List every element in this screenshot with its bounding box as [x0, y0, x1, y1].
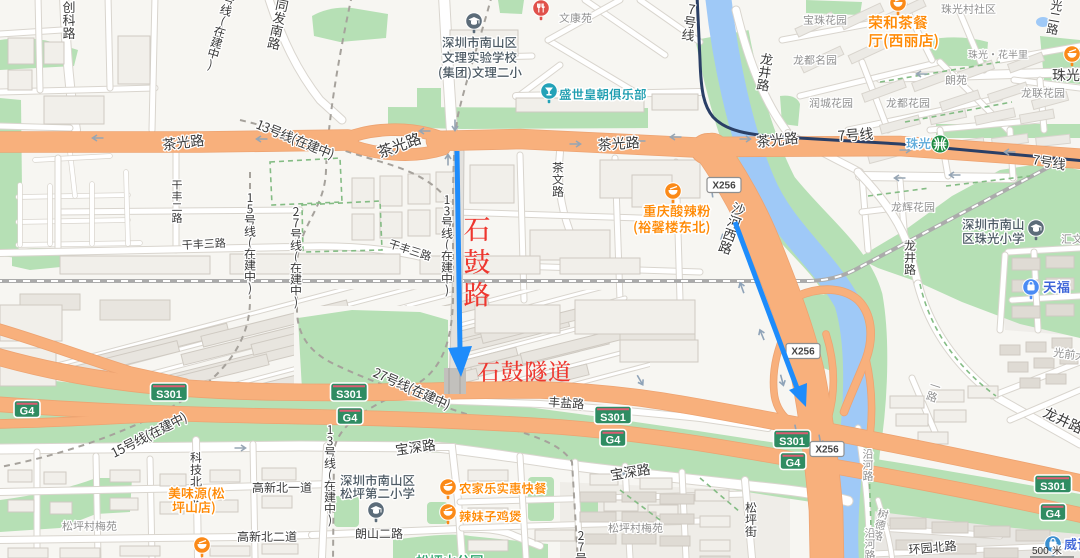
svg-text:G4: G4 — [606, 434, 622, 446]
svg-text:X256: X256 — [815, 445, 839, 456]
svg-text:S301: S301 — [1040, 481, 1066, 493]
svg-text:500: 500 — [1032, 546, 1049, 557]
svg-text:S301: S301 — [600, 412, 626, 424]
svg-text:X256: X256 — [791, 347, 815, 358]
svg-text:G4: G4 — [343, 412, 359, 424]
svg-text:G4: G4 — [786, 457, 802, 469]
svg-text:X256: X256 — [712, 181, 736, 192]
svg-text:S301: S301 — [336, 389, 362, 401]
svg-text:G4: G4 — [1046, 508, 1062, 520]
svg-text:G4: G4 — [20, 405, 36, 417]
svg-text:S301: S301 — [156, 389, 182, 401]
svg-text:S301: S301 — [779, 436, 805, 448]
